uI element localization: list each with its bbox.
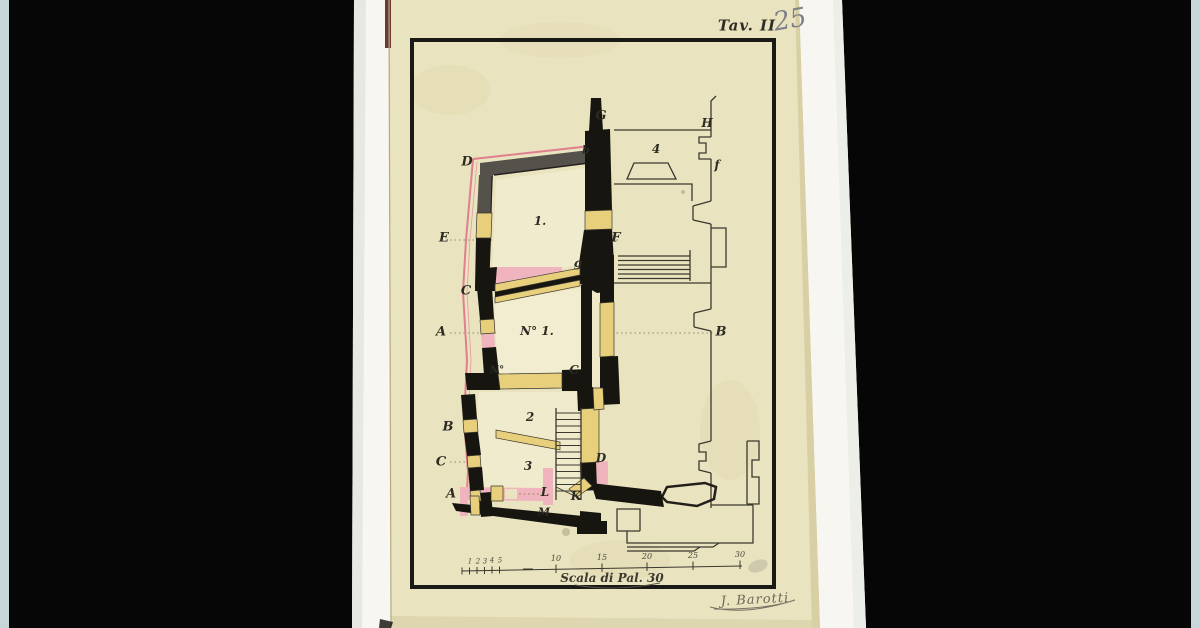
door-label-c: C [569,364,579,376]
plan-letter-C-upper: C [461,285,471,298]
scanned-plate: Tav. II 25 G H 4 f D b E 1. F g C A N° 1… [0,0,1200,628]
plan-letter-L: L [541,486,549,498]
room-number-4: 4 [652,143,660,155]
plan-letter-B-left: B [443,421,454,434]
scale-minor-3: 3 [483,559,487,566]
plan-letter-D-top: D [461,156,472,169]
scale-major-30: 30 [735,551,745,559]
plate-label: Tav. II [718,19,776,34]
scale-minor-5: 5 [498,558,502,565]
scale-major-25: 25 [688,552,698,560]
plan-letter-M: M [538,507,550,518]
room-number-3: 3 [524,460,532,472]
plan-letter-A-left: A [436,326,446,339]
door-gap [505,489,517,499]
plan-letter-K: K [571,490,581,502]
door-label-no: N° [490,366,504,376]
ink-stain [562,528,570,536]
signature: J. Barotti [720,592,789,609]
room-number-1-upper: 1. [534,215,547,227]
scale-caption: Scala di Pal. 30 [560,572,663,584]
plan-letter-f: f [714,159,719,171]
room-label-no1: N° 1. [520,325,554,337]
pencil-number: 25 [771,4,808,35]
scale-minor-1: 1 [468,559,472,566]
plan-letter-g: g [574,257,582,269]
plan-letter-F: F [611,232,620,245]
plan-letter-A-bottom: A [446,488,456,501]
paper-speck [681,190,685,194]
scale-major-15: 15 [597,554,607,562]
scale-major-10: 10 [551,555,561,563]
plan-letter-E: E [439,232,449,245]
plan-letter-G: G [595,110,606,123]
corner-letter-b: b [582,145,590,156]
scale-major-20: 20 [642,553,652,561]
floor-plan-scan [0,0,1200,628]
room-number-2: 2 [526,411,534,423]
scale-minor-2: 2 [476,559,480,566]
plan-letter-H: H [701,117,712,129]
plan-letter-D-stairs: D [596,452,606,464]
scale-minor-4: 4 [490,558,494,565]
plan-letter-B-right: B [716,326,727,339]
plan-letter-C-left: C [436,456,446,469]
